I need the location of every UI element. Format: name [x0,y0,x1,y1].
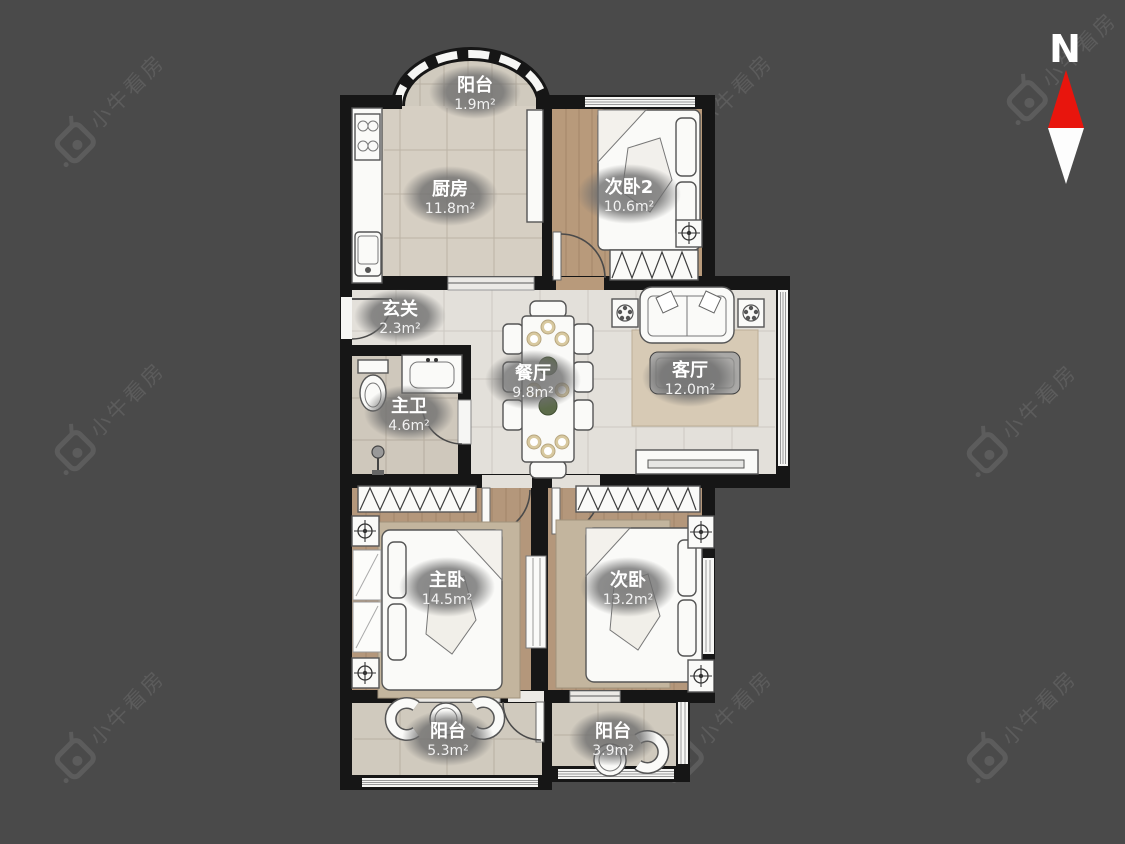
pillow [676,118,696,176]
svg-text:厨房: 厨房 [432,178,468,200]
room-label-bedroom2: 次卧2 10.6m² [577,164,681,224]
floorplan-image: 小牛看房 小牛看房 小牛看房 小牛看房 小牛看房 小牛看房 小牛看房 小牛看房 … [0,0,1125,844]
svg-text:客厅: 客厅 [672,359,708,381]
window [703,558,714,654]
room-label-balcony-top: 阳台 1.9m² [429,65,521,119]
svg-text:玄关: 玄关 [382,298,418,320]
room-label-balcony-left: 阳台 5.3m² [402,710,494,766]
svg-text:12.0m²: 12.0m² [665,382,715,398]
svg-text:小牛看房: 小牛看房 [997,665,1082,750]
window [585,97,695,107]
toilet-tank [358,360,388,373]
svg-text:主卧: 主卧 [429,569,465,591]
svg-text:主卫: 主卫 [391,395,427,417]
tv [648,460,744,468]
floorplan-svg: 小牛看房 小牛看房 小牛看房 小牛看房 小牛看房 小牛看房 小牛看房 小牛看房 … [0,0,1125,844]
svg-text:小牛看房: 小牛看房 [85,665,170,750]
wardrobe [576,486,700,512]
compass: N [1048,27,1084,184]
svg-text:小牛看房: 小牛看房 [85,49,170,134]
stove [355,114,380,160]
svg-text:13.2m²: 13.2m² [603,592,653,608]
pillow [388,604,406,660]
svg-text:5.3m²: 5.3m² [427,743,469,759]
room-label-master-bedroom: 主卧 14.5m² [399,557,495,617]
svg-text:次卧: 次卧 [610,569,646,591]
room-label-master-bath: 主卫 4.6m² [364,385,454,441]
wardrobe [358,486,476,512]
window [678,702,688,764]
watermark: 小牛看房 [42,658,170,786]
plant-box [738,299,764,327]
fridge [527,110,543,222]
svg-text:阳台: 阳台 [430,720,466,742]
svg-text:2.3m²: 2.3m² [379,321,421,337]
compass-needle-south [1048,128,1084,184]
sliding-panel [526,556,546,648]
room-label-kitchen: 厨房 11.8m² [402,166,498,226]
room-label-dining: 餐厅 9.8m² [485,350,581,410]
svg-text:3.9m²: 3.9m² [592,743,634,759]
pillow [678,600,696,656]
svg-text:4.6m²: 4.6m² [388,418,430,434]
window [362,778,538,787]
plant-box [612,299,638,327]
watermark: 小牛看房 [42,42,170,170]
svg-text:10.6m²: 10.6m² [604,199,654,215]
compass-north-label: N [1049,27,1081,71]
svg-text:阳台: 阳台 [595,720,631,742]
svg-text:9.8m²: 9.8m² [512,385,554,401]
room-label-living: 客厅 12.0m² [642,347,738,407]
watermark: 小牛看房 [42,350,170,478]
svg-text:1.9m²: 1.9m² [454,97,496,113]
svg-text:小牛看房: 小牛看房 [997,359,1082,444]
svg-text:小牛看房: 小牛看房 [85,357,170,442]
svg-text:餐厅: 餐厅 [514,362,551,384]
svg-text:阳台: 阳台 [457,74,493,96]
room-label-balcony-right: 阳台 3.9m² [569,710,657,766]
shower-mixer [372,446,384,458]
watermark: 小牛看房 [954,658,1082,786]
svg-text:14.5m²: 14.5m² [422,592,472,608]
room-label-bedroom: 次卧 13.2m² [580,557,676,617]
watermark: 小牛看房 [954,352,1082,480]
svg-text:11.8m²: 11.8m² [425,201,475,217]
window [778,290,788,466]
room-label-entry: 玄关 2.3m² [354,289,446,343]
svg-text:次卧2: 次卧2 [605,176,654,198]
